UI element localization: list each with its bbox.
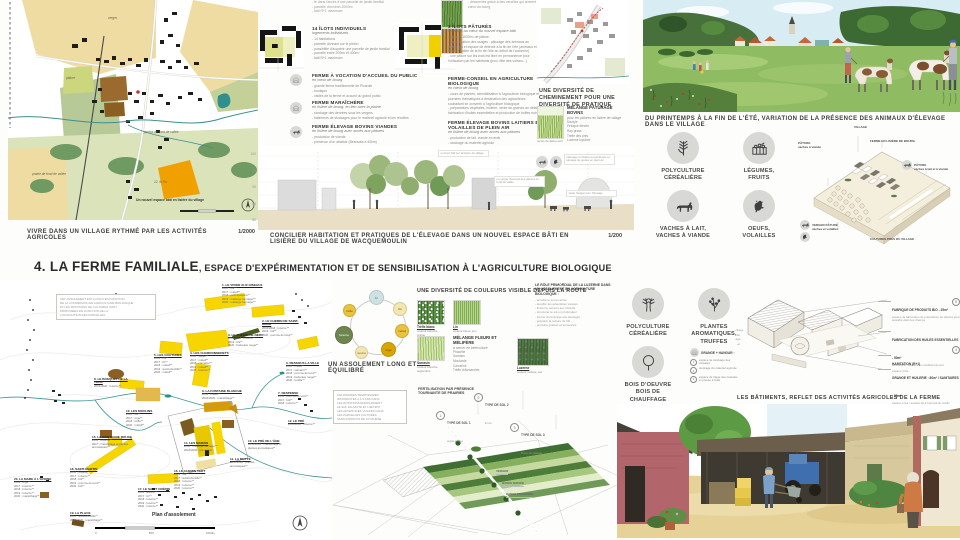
grass-photo-caption: semis de début avril	[537, 139, 565, 143]
window-2	[943, 436, 956, 450]
parcel-label: 4. LES CHARDONNERETS 2016 : seigle** 201…	[190, 352, 232, 373]
village-map-caption: VIVRE DANS UN VILLAGE RYTHMÉ PAR LES ACT…	[27, 229, 238, 241]
axon-label: PÂTURE vaches à lait et à viande	[914, 164, 948, 171]
window-1	[923, 436, 941, 450]
map-label: Un nouvel espace bâti en lisière du vill…	[136, 198, 204, 202]
farm-axonometric: ..ckage ..du ..age ..et FABRIQUE DE PROD…	[742, 288, 960, 394]
section-caption: CONCILIER HABITATION ET PRATIQUES DE L'É…	[270, 233, 570, 245]
block-ferme-conseil: FERME-CONSEIL EN AGRICULTURE BIOLOGIQUE …	[448, 76, 542, 116]
lin-photo	[453, 300, 481, 325]
rotation-crop-node: méteil	[395, 324, 409, 338]
parcel-label: 5. LES COUTURES 2016 : blé** 2017 : lin*…	[154, 354, 196, 375]
village-map-labels: vergerpâturejardins de fond de valléepra…	[8, 0, 258, 220]
cow-icon	[290, 126, 302, 138]
cheminement-map	[537, 0, 629, 84]
melange-title: MÉLANGE PÂTURAGE BOVINS	[567, 106, 629, 116]
wheat-sheaf-icon	[632, 288, 664, 320]
barn-icon	[290, 102, 302, 114]
field-label: VERGER	[496, 469, 508, 475]
parcel-label: 15. LA MONTAGNE ROUGE 2016 : luzerne** 2…	[92, 436, 134, 450]
grange-legend: GRANGE + HANGAR : 1 espace de stockage d…	[690, 348, 738, 383]
map-label: 12, le Pa	[154, 180, 167, 184]
section-note: pâturage en lisière au printemps et élev…	[564, 154, 615, 165]
rotation-crop-node: avoine	[355, 346, 368, 359]
parcel-label: 1. LE VIVIER AUX OISEAUX 2016 : blé** 20…	[222, 284, 264, 305]
door-arch	[923, 470, 939, 508]
block-ferme-accueil: FERME À VOCATION D'ACCUEIL DU PUBLIC en …	[312, 73, 442, 98]
village-map-caption-row: VIVRE DANS UN VILLAGE RYTHMÉ PAR LES ACT…	[27, 229, 255, 241]
farm-icon	[290, 74, 302, 86]
barn-icon	[690, 348, 699, 357]
melange-fleuri-block: MÉLANGE FLEURI ET MÉLIFÈRE à semer en in…	[453, 336, 513, 373]
melange-species: Dactyle Fétuque élevée Ray-grass Trèfle …	[567, 120, 629, 143]
wheat-icon	[667, 132, 699, 164]
axon-label: FERME EN LISIÈRE DE BOURG	[870, 140, 915, 144]
plan-assolement-caption: Plan d'assolement	[152, 512, 196, 518]
title-number: 4.	[34, 259, 46, 274]
map-label: verger	[108, 16, 117, 20]
parcel-label: 10. LES MOULINS 2016 : blé** 2017 : orge…	[126, 410, 168, 427]
block-14-ilots: 14 ÎLOTS INDIVIDUELS logements individue…	[312, 26, 392, 61]
parcel-label: 17. LE SAINT CRÉPIN 2016 : avoine** 2017…	[138, 488, 180, 509]
farm-axon-label: FABRIQUE DE PRODUITS BIO - 25m² 5 espace…	[892, 298, 960, 323]
activity-card-oeufs: OEUFS, VOLAILLES	[726, 190, 792, 241]
vegetable-crate-icon	[743, 132, 775, 164]
axon-labels: VILLAGEFERME EN LISIÈRE DE BOURGPÂTURE v…	[798, 126, 960, 250]
village-map-scale: 1/2000	[238, 229, 255, 241]
section-drawing: un front bâti sur la lisière du villageu…	[258, 146, 634, 230]
parcel-label: 7. DESPENSE 2016 : pomme de terre** 2017…	[278, 392, 320, 406]
fertilisation-panel: LES PRAIRIES TEMPORAIRES INTRODUITES 2 À…	[328, 385, 633, 540]
parcel-label: 13. LE PRÉ DE L'ÂNE 2016/2020 : maraîcha…	[248, 440, 290, 450]
farm-axon-labels: FABRIQUE DE PRODUITS BIO - 25m² 5 espace…	[892, 288, 960, 394]
luzerne-photo	[517, 338, 549, 366]
elevation-value: 85	[246, 202, 256, 206]
parcel-label: 20. LA MARE À L'AVOINE 2016 : orge** 201…	[14, 478, 56, 499]
elevation-value: 100	[246, 152, 256, 156]
parcel-label: 14. LES MARAIS 2016 : mélange fourrager*…	[184, 442, 226, 452]
sarrasin-photo	[417, 336, 445, 361]
rotation-crop-node: trèfle	[343, 304, 356, 317]
axon-label: PÂTURE vaches à viande	[798, 142, 821, 149]
elevation-scale: 10095908580	[246, 152, 258, 222]
parcel-label: 3. LE CHEMIN DE NÉRY 2016/2018 : luzerne…	[228, 334, 270, 348]
parcel-label: 9. LA FONTAINE BLANCHE 2016 : méteil** 2…	[202, 390, 244, 400]
parcel-label: 12. LE PRÉ 2016/2020 : luzerne**	[288, 420, 330, 427]
parcel-label: 18. SAINT-MARTIN 2016 : luzerne** 2017 :…	[70, 468, 112, 489]
tree-icon	[632, 346, 664, 378]
map-label: prairie de fond de vallée	[32, 172, 66, 176]
activity-card-vaches: VACHES À LAIT, VACHES À VIANDE	[650, 190, 716, 241]
assolement-scale-labels: 05001000m	[95, 531, 215, 535]
crates	[735, 478, 751, 506]
luzerne-role-title: LE RÔLE PRIMORDIAL DE LA LUZERNE DANS UN…	[535, 283, 615, 296]
section-note: un verger d'accueil des pâtures en fond …	[494, 176, 545, 187]
rotation-crop-node: orge	[381, 342, 396, 357]
grass-photo	[537, 106, 564, 139]
axon-label: CULTURES PRÈS DU VILLAGE	[870, 238, 914, 242]
presentation-board: vergerpâturejardins de fond de valléepra…	[0, 0, 960, 540]
luzerne-role-block: LE RÔLE PRIMORDIAL DE LA LUZERNE DANS UN…	[535, 283, 615, 327]
axon-label: VERGER PÂTURÉ vaches et volailles	[812, 224, 838, 231]
field-label: BANDE BOISÉE	[502, 481, 524, 487]
activity-card-polyculture: POLYCULTURE CÉRÉALIÈRE	[650, 132, 716, 183]
rotation-crop-node: blé	[393, 302, 407, 316]
section-note: vaste hangar pour l'élevage	[566, 190, 617, 197]
village-map: vergerpâturejardins de fond de valléepra…	[8, 0, 258, 220]
title-rest: , ESPACE D'EXPÉRIMENTATION ET DE SENSIBI…	[199, 263, 612, 273]
parcel-label: 8. LE BOSQUET DE LA TOUR 2016/2020 : luz…	[94, 378, 136, 388]
legend-item: 2 stockage du matériel agricole	[690, 367, 738, 374]
grange-legend-title: GRANGE + HANGAR :	[701, 351, 735, 355]
trefle-photo	[417, 300, 445, 325]
rotation-crop-node: lin	[369, 290, 384, 305]
courtyard-illustration	[617, 404, 960, 538]
parcel-label: 11. LA MOTTE 2016/2020 : plantes aromati…	[230, 458, 272, 468]
parcel-labels: 1. LE VIVIER AUX OISEAUX 2016 : blé** 20…	[0, 280, 332, 540]
activity-card-bois: BOIS D'OEUVRE BOIS DE CHAUFFAGE	[618, 346, 678, 404]
title-main: LA FERME FAMILIALE	[46, 259, 199, 274]
plan-thumbnail-1	[258, 24, 304, 72]
map-label: pâture	[66, 76, 75, 80]
pasture-illustration	[643, 0, 960, 112]
partial-text: - desservies grâce à des venelles qui ar…	[468, 0, 544, 9]
elevation-value: 95	[246, 169, 256, 173]
parcel-label: 16. LE CHEMIN VERT 2016 : blé** 2017 : a…	[174, 470, 216, 491]
legend-item: 1 espace de stockage des céréales	[690, 359, 738, 366]
block-3-ilots: 3 ÎLOTS PÂTURÉS localisés au cœur du nou…	[448, 24, 542, 64]
assolement-map: CET ASSOLEMENT EST CONÇU EN FONCTION DE …	[0, 280, 332, 540]
luzerne-role-bullets: - enrichir le sol en azote - étouffer le…	[535, 298, 615, 327]
block-ferme-laitiers: FERME ÉLEVAGE BOVINS LAITIERS ET VOLAILL…	[448, 120, 542, 146]
legend-item: 3 espace de triage des céréales et press…	[690, 376, 738, 383]
parcel-label: 6. DESSOUS LA VILLE 2016 : méteil** 2017…	[286, 362, 328, 383]
map-label: jardins de fond de vallée	[144, 130, 179, 134]
village-axonometric: VILLAGEFERME EN LISIÈRE DE BOURGPÂTURE v…	[798, 126, 960, 250]
partial-text: - te dans l'accès d'une parcelle de jard…	[312, 0, 457, 14]
rotation-crop-node: luzerne	[335, 326, 353, 344]
block-ferme-maraichere: FERME MARAÎCHÈRE en lisière de bourg, en…	[312, 100, 442, 121]
elevation-value: 90	[246, 185, 256, 189]
section-caption-row: CONCILIER HABITATION ET PRATIQUES DE L'É…	[270, 233, 622, 245]
elevation-value: 80	[246, 218, 256, 222]
farm-axon-caption: LES BÂTIMENTS, REFLET DES ACTIVITÉS AGRI…	[737, 395, 957, 401]
aromatic-plant-icon	[698, 288, 730, 320]
courtyard-tree	[791, 337, 809, 355]
section-notes: un front bâti sur la lisière du villageu…	[258, 146, 634, 230]
axon-left-partials: ..ckage ..du ..age ..et	[734, 328, 740, 347]
hen-icon	[743, 190, 775, 222]
activity-card-legumes: LÉGUMES, FRUITS	[726, 132, 792, 183]
section-scale: 1/200	[608, 233, 622, 245]
parcel-label: 19. LA PLACE 2016 : avoine/lentille** 20…	[70, 512, 112, 522]
axon-label: VILLAGE	[854, 126, 867, 130]
activity-card-polyculture-2: POLYCULTURE CÉRÉALIÈRE	[618, 288, 678, 339]
cow-icon	[667, 190, 699, 222]
block-ferme-bovins-viandes: FERME ÉLEVAGE BOVINS VIANDES en lisière …	[312, 124, 442, 145]
section-note: un front bâti sur la lisière du village	[438, 150, 489, 157]
section-4-title: 4. LA FERME FAMILIALE, ESPACE D'EXPÉRIME…	[34, 258, 612, 276]
field-label: BANDE ENHERBÉE	[506, 492, 533, 498]
rotation-diagram: linbléméteilorgeavoineluzernetrèfle	[333, 290, 423, 370]
